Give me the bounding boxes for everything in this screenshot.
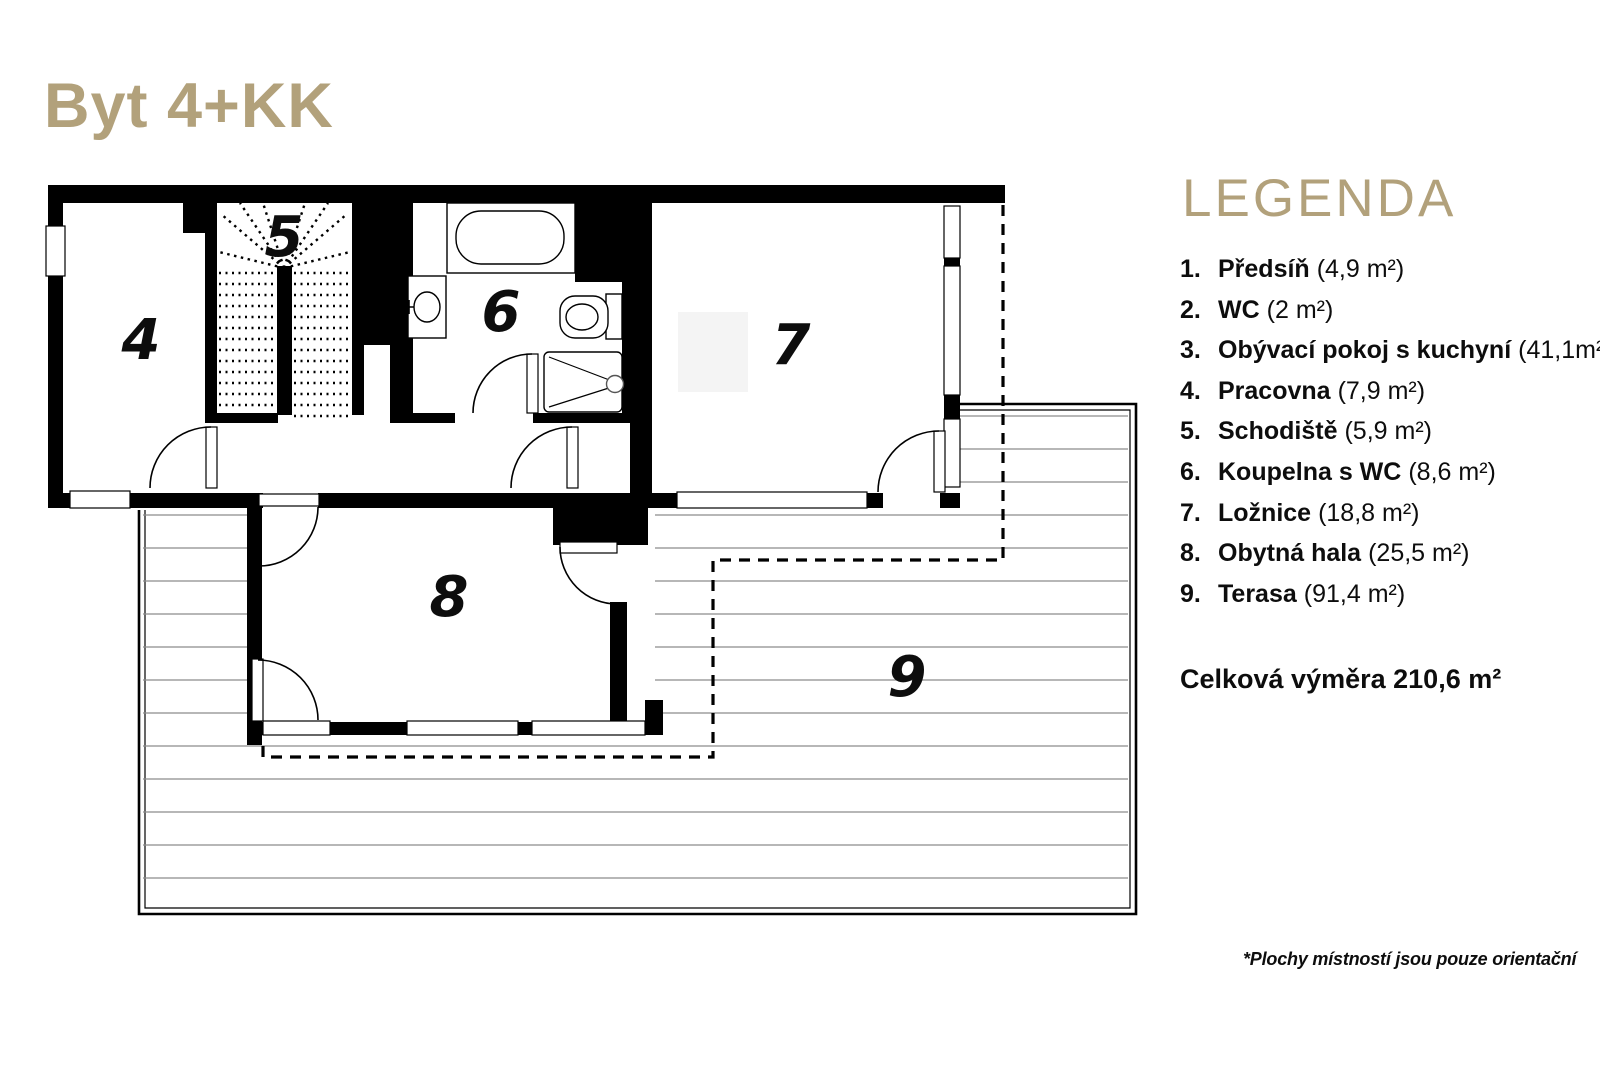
door-leaf-room7 xyxy=(934,431,945,492)
legend-item: 2.WC(2 m²) xyxy=(1180,296,1580,337)
legend-item: 7.Ložnice(18,8 m²) xyxy=(1180,499,1580,540)
window-room7-east3 xyxy=(944,419,960,487)
door-leaf-room8-bottom xyxy=(252,659,263,721)
legend-item-num: 9. xyxy=(1180,580,1218,609)
wall-bath-west xyxy=(390,345,413,423)
door-leaf-room8-right xyxy=(560,542,617,553)
wall-top xyxy=(48,185,1005,203)
legend-item-name: Koupelna s WC xyxy=(1218,458,1401,487)
door-arc-room4 xyxy=(150,427,211,488)
wall-stair-right xyxy=(352,203,413,345)
window-room8-b3 xyxy=(532,721,645,735)
legend-item-num: 2. xyxy=(1180,296,1218,325)
wall-room8-bottom-r xyxy=(645,700,663,735)
door-leaf-bathroom xyxy=(527,354,538,413)
wall-stair-right-low xyxy=(352,345,364,415)
stair-treads-left xyxy=(219,273,275,405)
door-arc-room8-top xyxy=(259,507,318,566)
wall-bath-bottom-e xyxy=(533,413,630,423)
legend-item-name: Obytná hala xyxy=(1218,539,1361,568)
legend-item: 4.Pracovna(7,9 m²) xyxy=(1180,377,1580,418)
room-label-6: 6 xyxy=(482,280,521,345)
legend-item-area: (2 m²) xyxy=(1267,296,1334,325)
legend-item-num: 1. xyxy=(1180,255,1218,284)
footnote: *Plochy místností jsou pouze orientační xyxy=(1243,949,1576,970)
legend-item: 9.Terasa(91,4 m²) xyxy=(1180,580,1580,621)
legend-heading: LEGENDA xyxy=(1182,168,1580,229)
legend-item-num: 6. xyxy=(1180,458,1218,487)
legend-item-name: Předsíň xyxy=(1218,255,1310,284)
legend-item: 5.Schodiště(5,9 m²) xyxy=(1180,417,1580,458)
toilet-bowl xyxy=(566,304,598,330)
legend-item-name: Schodiště xyxy=(1218,417,1337,446)
legend-item-area: (18,8 m²) xyxy=(1318,499,1419,528)
door-leaf-corridor xyxy=(567,427,578,488)
legend-item-name: Ložnice xyxy=(1218,499,1311,528)
legend-item-area: (7,9 m²) xyxy=(1338,377,1426,406)
legend-item-area: (5,9 m²) xyxy=(1344,417,1432,446)
stair-treads-right xyxy=(294,273,350,416)
legend-item-name: WC xyxy=(1218,296,1260,325)
legend-item-num: 4. xyxy=(1180,377,1218,406)
legend-item-area: (41,1m²) xyxy=(1518,336,1600,365)
wall-stair-left xyxy=(205,203,217,423)
legend-item-name: Terasa xyxy=(1218,580,1297,609)
door-leaf-room8-top xyxy=(259,494,319,506)
legend-item: 8.Obytná hala(25,5 m²) xyxy=(1180,539,1580,580)
window-room7-east1 xyxy=(944,206,960,258)
legend-list: 1.Předsíň(4,9 m²) 2.WC(2 m²) 3.Obývací p… xyxy=(1180,255,1580,620)
wall-room8-top xyxy=(318,493,553,508)
door-arc-bathroom xyxy=(473,354,532,413)
wall-room7-bottom-e xyxy=(940,493,960,508)
door-leaf-room4 xyxy=(206,427,217,488)
wall-stair-bottom xyxy=(205,413,278,423)
legend-item-num: 8. xyxy=(1180,539,1218,568)
stair-newel-wall xyxy=(277,266,292,415)
floor-plan-page: { "title": "Byt 4+KK", "legend": { "head… xyxy=(0,0,1600,1067)
window-room8-b2 xyxy=(407,721,518,735)
legend-item-name: Pracovna xyxy=(1218,377,1331,406)
door-arc-room8-bottom xyxy=(258,660,318,720)
wall-bath-bottom-w xyxy=(390,413,455,423)
room7-shade xyxy=(678,312,748,392)
window-room8-b1 xyxy=(263,721,330,735)
wall-room7-bottom-mullion xyxy=(867,493,883,508)
window-room7-south xyxy=(677,492,867,508)
door-arc-room8-right xyxy=(560,547,617,604)
wall-block xyxy=(553,493,648,545)
legend-item-num: 3. xyxy=(1180,336,1218,365)
legend-item: 1.Předsíň(4,9 m²) xyxy=(1180,255,1580,296)
legend-item-area: (4,9 m²) xyxy=(1317,255,1405,284)
wall-room7-east-seg xyxy=(944,395,960,420)
window-corridor xyxy=(70,491,130,508)
door-arc-room7 xyxy=(878,431,939,492)
wall-room8-bottom-l xyxy=(247,722,263,735)
shower-drain xyxy=(607,376,624,393)
room-label-8: 8 xyxy=(430,565,469,630)
room-label-4: 4 xyxy=(121,308,161,373)
bathtub-symbol xyxy=(456,211,564,264)
door-arc-corridor xyxy=(511,427,572,488)
wall-room7-bottom-w xyxy=(652,493,677,508)
legend-panel: LEGENDA 1.Předsíň(4,9 m²) 2.WC(2 m²) 3.O… xyxy=(1180,168,1580,695)
sink-symbol xyxy=(414,292,440,322)
wall-room8-right xyxy=(610,602,627,722)
legend-item-num: 7. xyxy=(1180,499,1218,528)
legend-item: 6.Koupelna s WC(8,6 m²) xyxy=(1180,458,1580,499)
legend-item: 3.Obývací pokoj s kuchyní(41,1m²) xyxy=(1180,336,1580,377)
wall-room8-bottom-mullion xyxy=(518,722,532,735)
room-label-9: 9 xyxy=(888,645,927,710)
legend-item-area: (91,4 m²) xyxy=(1304,580,1405,609)
room-label-5: 5 xyxy=(265,205,304,270)
legend-item-area: (25,5 m²) xyxy=(1368,539,1469,568)
legend-item-area: (8,6 m²) xyxy=(1408,458,1496,487)
room-labels: 4 5 6 7 8 9 xyxy=(121,205,927,710)
legend-item-num: 5. xyxy=(1180,417,1218,446)
wall-room7-west xyxy=(630,185,652,508)
legend-total-area: Celková výměra 210,6 m² xyxy=(1180,664,1580,695)
wall-room8-bottom-m xyxy=(330,722,407,735)
window-room4-west xyxy=(46,226,65,276)
room-label-7: 7 xyxy=(772,313,811,378)
legend-item-name: Obývací pokoj s kuchyní xyxy=(1218,336,1511,365)
window-room7-east2 xyxy=(944,266,960,395)
